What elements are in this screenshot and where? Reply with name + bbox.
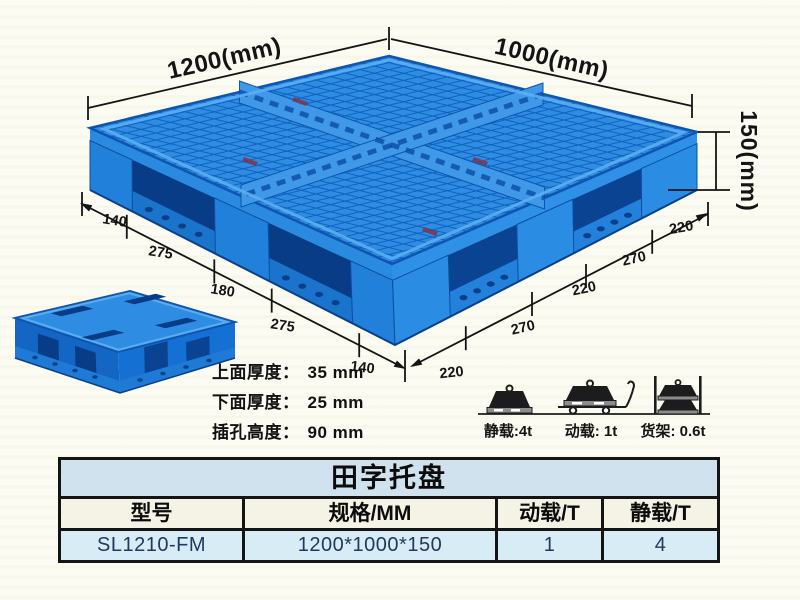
dim-right-3: 270 [621,249,648,270]
load-icons [478,376,710,414]
table-header-row: 型号 规格/MM 动载/T 静载/T [61,499,717,531]
dynamic-load-label: 动载: 1t [565,420,618,441]
dim-left-3: 275 [269,316,295,336]
table-cell-static-load: 4 [604,531,717,560]
spec-fork-height: 插孔高度：90 mm [212,418,364,442]
rack-load-icon [654,376,702,414]
spec-fork-height-label: 插孔高度： [212,423,300,442]
dim-right-1: 270 [510,318,537,339]
table-row: SL1210-FM 1200*1000*150 1 4 [61,531,717,560]
spec-top-thickness-label: 上面厚度： [212,363,300,382]
table-header-model: 型号 [61,499,245,528]
table-cell-dynamic-load: 1 [498,531,604,560]
dim-depth-label: 1000(mm) [492,33,611,85]
static-load-label: 静载:4t [484,420,532,441]
dim-right-0: 220 [439,364,465,382]
small-pallet [15,291,235,393]
dim-left-1: 275 [147,243,173,263]
spec-top-thickness: 上面厚度：35 mm [212,358,364,382]
table-cell-spec: 1200*1000*150 [245,531,498,560]
spec-table: 田字托盘 型号 规格/MM 动载/T 静载/T SL1210-FM 1200*1… [58,457,720,563]
dynamic-load-icon [558,381,634,414]
rack-load-label: 货架: 0.6t [640,420,705,441]
table-header-spec: 规格/MM [245,499,498,528]
main-pallet [90,56,697,345]
dim-left-0: 140 [101,211,127,231]
dim-left-2: 180 [209,281,235,301]
table-header-dynamic-load: 动载/T [498,499,604,528]
dim-height-label: 150(mm) [736,110,762,212]
spec-top-thickness-value: 35 mm [308,363,364,382]
spec-bottom-thickness: 下面厚度：25 mm [212,388,364,412]
table-cell-model: SL1210-FM [61,531,245,560]
dim-right-4: 220 [668,218,695,238]
table-title: 田字托盘 [61,460,717,499]
spec-bottom-thickness-label: 下面厚度： [212,393,300,412]
spec-fork-height-value: 90 mm [308,423,364,442]
static-load-icon [487,386,532,414]
table-header-static-load: 静载/T [604,499,717,528]
spec-bottom-thickness-value: 25 mm [308,393,364,412]
